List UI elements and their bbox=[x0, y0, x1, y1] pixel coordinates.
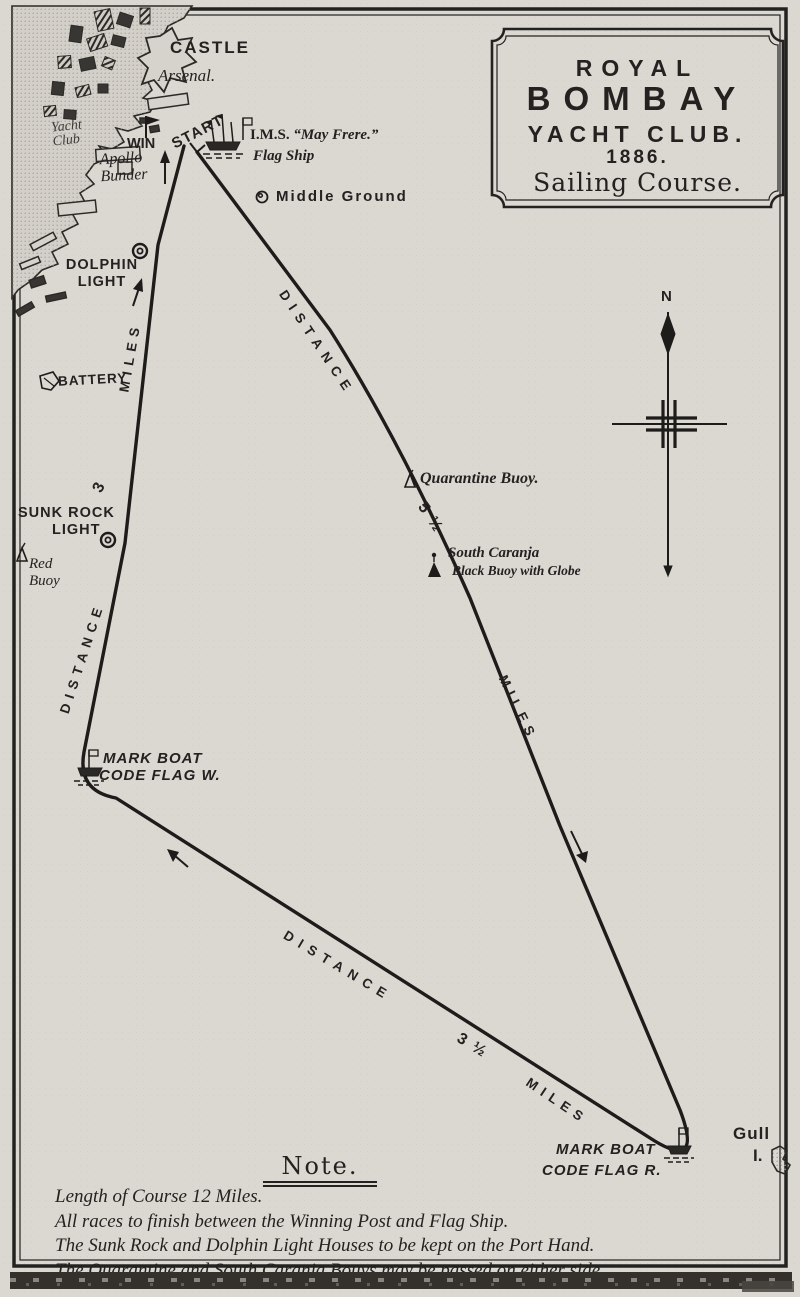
mark-boat-r-icon bbox=[664, 1128, 694, 1162]
label-apollo-bunder: Apollo Bunder bbox=[99, 149, 148, 185]
label-ims-prefix: I.M.S. bbox=[250, 127, 290, 143]
bottom-scan-band bbox=[10, 1272, 792, 1289]
label-ims-name: “May Frere.” bbox=[293, 127, 378, 143]
label-flag-ship-name: I.M.S. “May Frere.” bbox=[250, 127, 378, 144]
label-red-buoy: Red Buoy bbox=[29, 556, 60, 590]
label-mark-boat-w-1: MARK BOAT bbox=[103, 750, 203, 767]
label-yacht-club: Yacht Club bbox=[51, 118, 84, 149]
red-buoy-icon bbox=[17, 543, 27, 561]
label-mark-boat-w-2: CODE FLAG W. bbox=[99, 767, 221, 784]
map-canvas: ROYAL BOMBAY YACHT CLUB. 1886. Sailing C… bbox=[0, 0, 800, 1297]
label-flag-ship-caption: Flag Ship bbox=[253, 148, 314, 165]
title-year: 1886. bbox=[492, 147, 783, 169]
label-middle-ground: Middle Ground bbox=[276, 188, 408, 205]
note-text: Length of Course 12 Miles. All races to … bbox=[55, 1185, 755, 1283]
label-mark-boat-r-2: CODE FLAG R. bbox=[542, 1162, 662, 1179]
south-caranja-buoy-icon bbox=[428, 553, 441, 577]
label-south-caranja: South Caranja bbox=[448, 545, 539, 562]
title-bombay: BOMBAY bbox=[492, 80, 783, 118]
finish-arrow-icon bbox=[160, 150, 170, 184]
note-line-3: The Sunk Rock and Dolphin Light Houses t… bbox=[55, 1234, 755, 1259]
label-south-caranja-2: Black Buoy with Globe bbox=[452, 563, 581, 579]
label-arsenal: Arsenal. bbox=[158, 66, 215, 86]
title-box: ROYAL BOMBAY YACHT CLUB. 1886. Sailing C… bbox=[492, 29, 783, 207]
label-castle: CASTLE bbox=[170, 38, 250, 58]
label-dolphin-light: DOLPHIN LIGHT bbox=[62, 257, 142, 291]
label-mark-boat-r-1: MARK BOAT bbox=[556, 1141, 656, 1158]
label-sunk-rock-2: LIGHT bbox=[52, 522, 101, 538]
note-heading: Note. bbox=[263, 1152, 377, 1187]
plate-smudge bbox=[742, 1281, 794, 1292]
title-subtitle: Sailing Course. bbox=[492, 168, 783, 197]
compass-rose bbox=[612, 312, 727, 576]
middle-ground-icon bbox=[257, 192, 268, 203]
title-royal: ROYAL bbox=[492, 55, 783, 82]
bottom-arrow-icon bbox=[167, 849, 188, 867]
battery-fort-icon bbox=[40, 372, 59, 390]
label-compass-north: N bbox=[661, 288, 672, 305]
label-gull-2: I. bbox=[753, 1146, 762, 1166]
sunk-rock-lighthouse-icon bbox=[101, 533, 115, 547]
label-gull-1: Gull bbox=[733, 1124, 770, 1144]
dolphin-lighthouse-icon bbox=[133, 244, 147, 258]
title-yacht-club: YACHT CLUB. bbox=[492, 121, 783, 148]
label-quarantine-buoy: Quarantine Buoy. bbox=[420, 470, 539, 488]
note-line-2: All races to finish between the Winning … bbox=[55, 1210, 755, 1235]
note-line-1: Length of Course 12 Miles. bbox=[55, 1185, 755, 1210]
label-sunk-rock: SUNK ROCK bbox=[18, 505, 115, 521]
